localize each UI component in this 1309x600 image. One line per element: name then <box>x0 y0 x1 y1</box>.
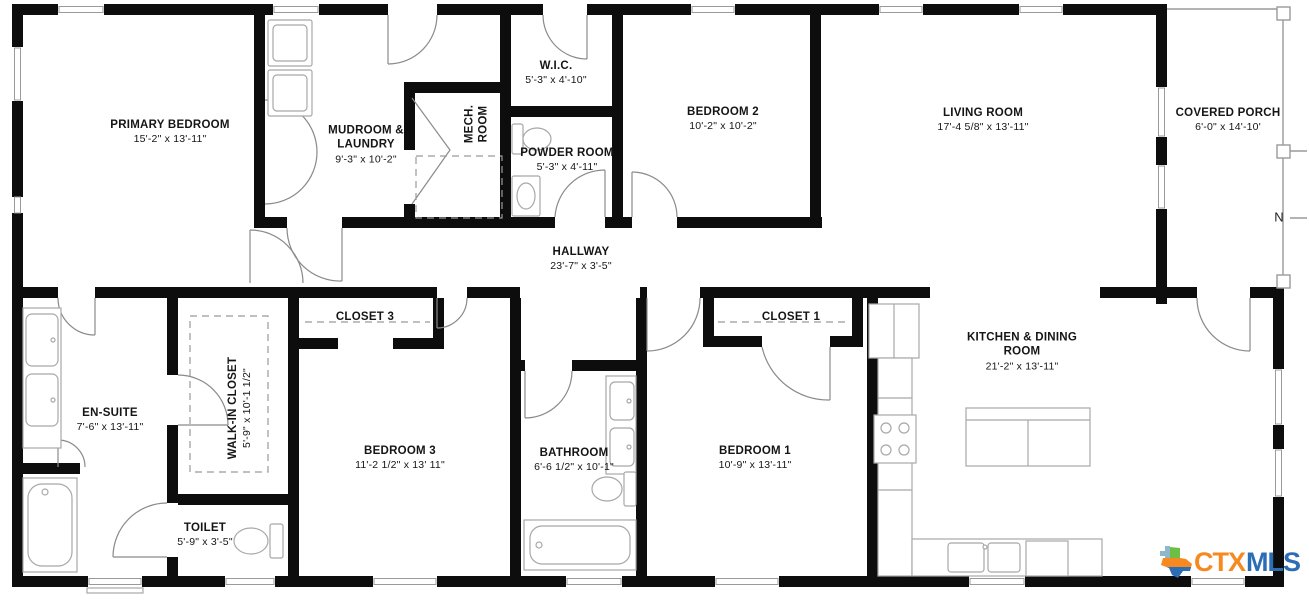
exterior-step <box>87 588 143 593</box>
ctxmls-logo: CTX MLS <box>1159 545 1300 579</box>
texas-state-icon <box>1159 545 1193 579</box>
doors <box>58 15 1250 557</box>
en-suite-bathtub <box>23 478 77 572</box>
kitchen-fixtures <box>869 304 1102 576</box>
north-indicator: N <box>1274 210 1283 225</box>
toilet-fixture <box>234 524 283 558</box>
porch-outline <box>1167 7 1307 288</box>
fixtures <box>23 20 1102 593</box>
interior-walls <box>12 15 1284 577</box>
en-suite-vanity <box>23 308 61 448</box>
logo-text-mls: MLS <box>1246 549 1300 576</box>
logo-text-ctx: CTX <box>1194 549 1245 576</box>
washer-dryer <box>268 20 312 116</box>
floor-plan-canvas <box>0 0 1309 600</box>
powder-room-fixtures <box>512 124 551 216</box>
bathroom-fixtures <box>524 376 636 570</box>
floor-plan-page: PRIMARY BEDROOM 15'-2" x 13'-11" MUDROOM… <box>0 0 1309 600</box>
